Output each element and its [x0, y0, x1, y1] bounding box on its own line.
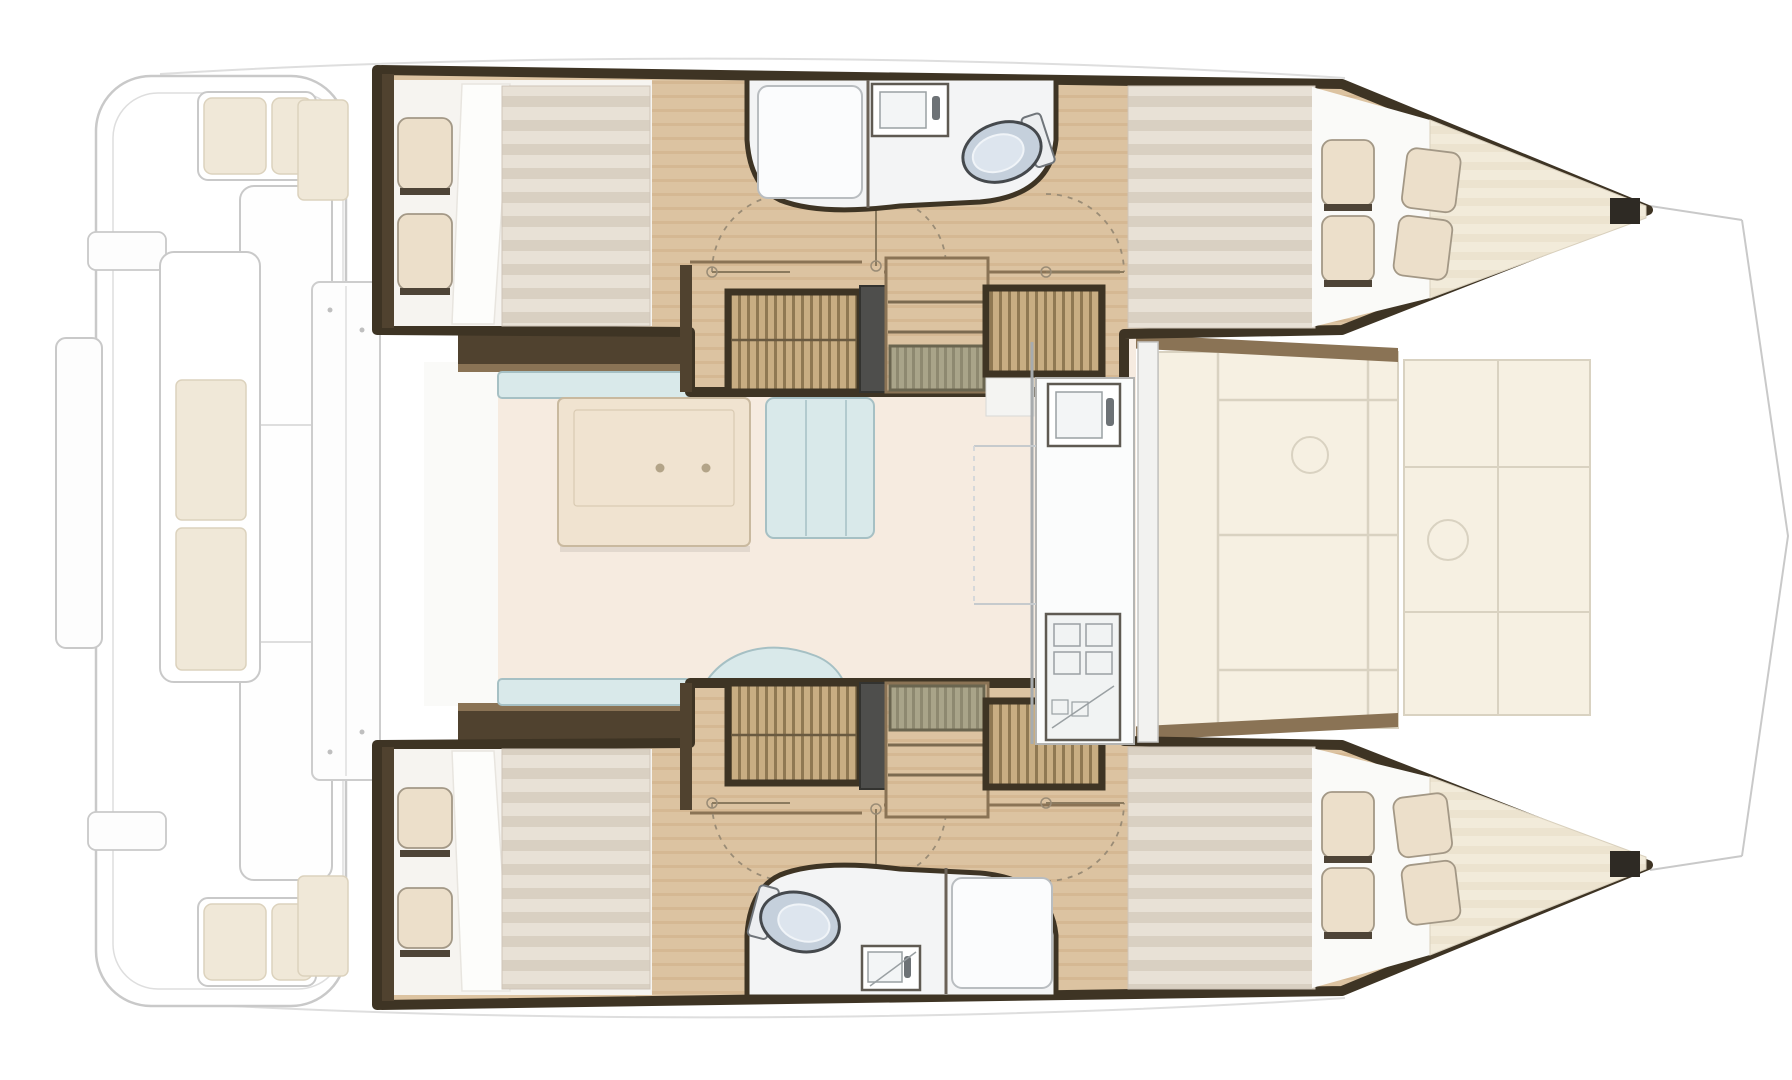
- port-forward-cabin: [1128, 86, 1646, 328]
- pillow: [398, 118, 452, 190]
- wardrobe: [728, 292, 860, 392]
- sliding-door-column: [312, 282, 380, 780]
- settee-bench-bottom: [498, 679, 690, 705]
- double-bed-mattress: [502, 749, 650, 989]
- catamaran-floor-plan: [0, 0, 1792, 1080]
- double-bed-mattress: [502, 86, 650, 326]
- transom-step-top: [88, 232, 166, 270]
- stair-landing: [986, 378, 1034, 416]
- saloon-shelf-top: [458, 364, 688, 372]
- pillow: [1392, 792, 1453, 858]
- saloon-bulkhead-bottom: [458, 711, 688, 743]
- pillow: [1401, 860, 1462, 926]
- pillow: [1393, 215, 1454, 281]
- pillow: [1322, 216, 1374, 282]
- vberth-mattress: [1128, 747, 1315, 989]
- washbasin: [872, 84, 948, 136]
- stair-tread: [890, 346, 984, 390]
- faucet-icon: [1106, 398, 1114, 426]
- companionway-partition: [860, 683, 886, 789]
- anchor-locker: [1610, 198, 1640, 224]
- starboard-bathroom: [746, 865, 1056, 997]
- pillow: [1322, 140, 1374, 206]
- cockpit-center-bench: [160, 252, 260, 682]
- seat-cushion: [204, 904, 266, 980]
- pillow: [398, 788, 452, 848]
- saloon-entry-walkway: [424, 362, 498, 706]
- stair-tread: [890, 686, 984, 730]
- companionway-jamb: [680, 683, 692, 810]
- washbasin: [862, 946, 920, 990]
- forward-cockpit: [1124, 334, 1590, 741]
- galley-sink: [1048, 384, 1120, 446]
- shower-tray: [758, 86, 862, 198]
- pillow: [1322, 868, 1374, 934]
- starboard-forward-cabin: [1128, 747, 1646, 989]
- seat-cushion: [204, 98, 266, 174]
- forward-bulkhead-strip: [1138, 342, 1158, 742]
- settee-chaise: [766, 398, 874, 538]
- settee-bench-top: [498, 372, 690, 398]
- stern-locker-cushion-top: [298, 100, 348, 200]
- cup-holder-icon: [656, 464, 665, 473]
- galley-stove: [1046, 614, 1120, 740]
- transom-step-bottom: [88, 812, 166, 850]
- stern-locker-cushion-bottom: [298, 876, 348, 976]
- port-bathroom: [747, 78, 1057, 210]
- saloon-bulkhead-top: [458, 332, 688, 364]
- companionway-partition: [860, 286, 886, 392]
- saloon-table: [558, 398, 750, 552]
- transom-platform: [56, 338, 102, 648]
- starboard-aft-cabin: [382, 747, 652, 1001]
- wardrobe: [986, 288, 1102, 374]
- cup-holder-icon: [702, 464, 711, 473]
- pillow: [1322, 792, 1374, 858]
- companionway-jamb: [680, 265, 692, 392]
- forward-lounge-panels: [1158, 352, 1398, 728]
- faucet-icon: [932, 96, 940, 120]
- wardrobe: [728, 683, 860, 783]
- companionway-stairs: [886, 683, 988, 817]
- bench-cushion: [176, 380, 246, 520]
- pillow: [398, 214, 452, 290]
- shower-tray: [952, 878, 1052, 988]
- anchor-locker: [1610, 851, 1640, 877]
- bow-trampoline-rigging: [1650, 206, 1788, 870]
- floor-plan-page: [0, 0, 1792, 1080]
- vberth-mattress: [1128, 86, 1315, 328]
- pillow: [1401, 147, 1462, 213]
- pillow: [398, 888, 452, 948]
- bench-cushion: [176, 528, 246, 670]
- port-aft-cabin: [382, 74, 652, 328]
- companionway-stairs: [886, 258, 988, 392]
